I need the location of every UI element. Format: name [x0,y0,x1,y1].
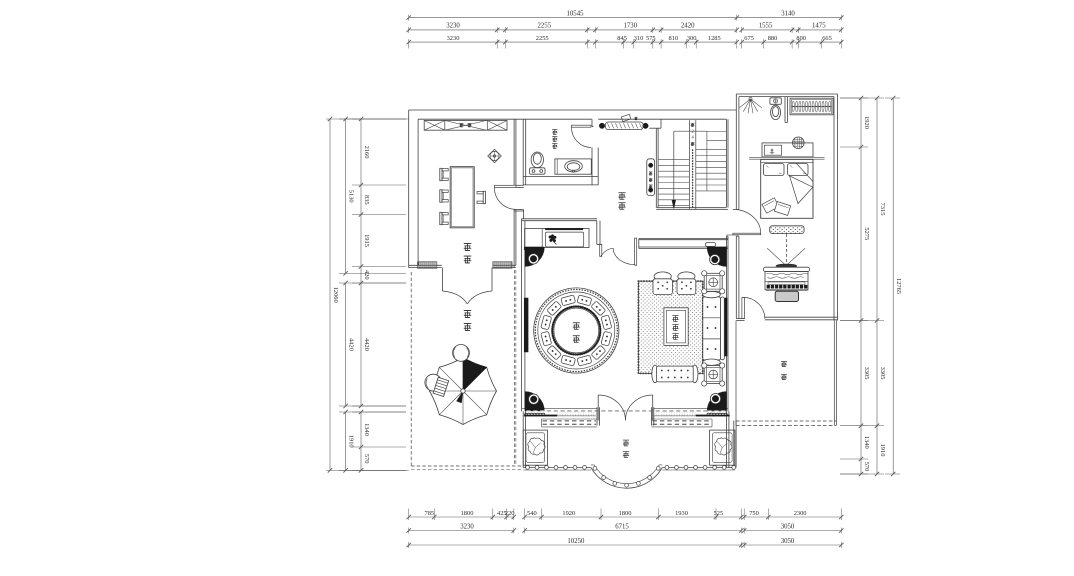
svg-text:750: 750 [749,510,759,517]
svg-text:5275: 5275 [863,227,870,240]
svg-text:1340: 1340 [863,436,870,449]
svg-text:665: 665 [822,35,832,42]
svg-text:800: 800 [796,35,806,42]
svg-text:6715: 6715 [615,523,629,530]
svg-text:5130: 5130 [347,190,354,203]
svg-text:3050: 3050 [781,523,795,530]
svg-text:420: 420 [363,270,370,280]
svg-text:220: 220 [505,510,515,517]
svg-text:3050: 3050 [781,538,795,545]
svg-text:880: 880 [768,35,778,42]
svg-text:3230: 3230 [446,23,460,30]
svg-text:1920: 1920 [562,510,575,517]
svg-text:785: 785 [425,510,435,517]
svg-text:3140: 3140 [781,10,795,17]
svg-text:525: 525 [714,510,724,517]
svg-text:12765: 12765 [895,278,902,294]
svg-text:3305: 3305 [863,367,870,380]
svg-text:7315: 7315 [879,203,886,216]
svg-text:300: 300 [687,35,697,42]
svg-text:1920: 1920 [863,116,870,129]
svg-text:2420: 2420 [681,23,695,30]
svg-text:12060: 12060 [332,287,339,303]
svg-text:3230: 3230 [460,523,474,530]
svg-text:1555: 1555 [759,23,773,30]
svg-text:675: 675 [744,35,754,42]
svg-text:1800: 1800 [619,510,632,517]
svg-text:1910: 1910 [347,435,354,448]
svg-text:1930: 1930 [675,510,688,517]
svg-text:835: 835 [363,195,370,205]
svg-text:1475: 1475 [812,23,826,30]
svg-text:2160: 2160 [363,146,370,159]
svg-text:1730: 1730 [624,23,638,30]
svg-text:2255: 2255 [538,23,552,30]
svg-text:845: 845 [617,35,627,42]
svg-text:570: 570 [863,462,870,472]
svg-text:2255: 2255 [536,35,549,42]
svg-text:575: 575 [646,35,656,42]
svg-text:3230: 3230 [447,35,460,42]
svg-text:2300: 2300 [794,510,807,517]
svg-text:540: 540 [527,510,537,517]
svg-text:1340: 1340 [363,423,370,436]
svg-text:310: 310 [634,35,644,42]
svg-text:3305: 3305 [879,367,886,380]
svg-text:4420: 4420 [347,338,354,351]
svg-text:10545: 10545 [567,10,585,17]
svg-text:4420: 4420 [363,338,370,351]
svg-text:810: 810 [669,35,679,42]
svg-text:570: 570 [363,454,370,464]
svg-text:1800: 1800 [461,510,474,517]
svg-text:1285: 1285 [708,35,721,42]
svg-text:1915: 1915 [363,234,370,247]
svg-text:1910: 1910 [879,444,886,457]
svg-text:10250: 10250 [567,538,585,545]
